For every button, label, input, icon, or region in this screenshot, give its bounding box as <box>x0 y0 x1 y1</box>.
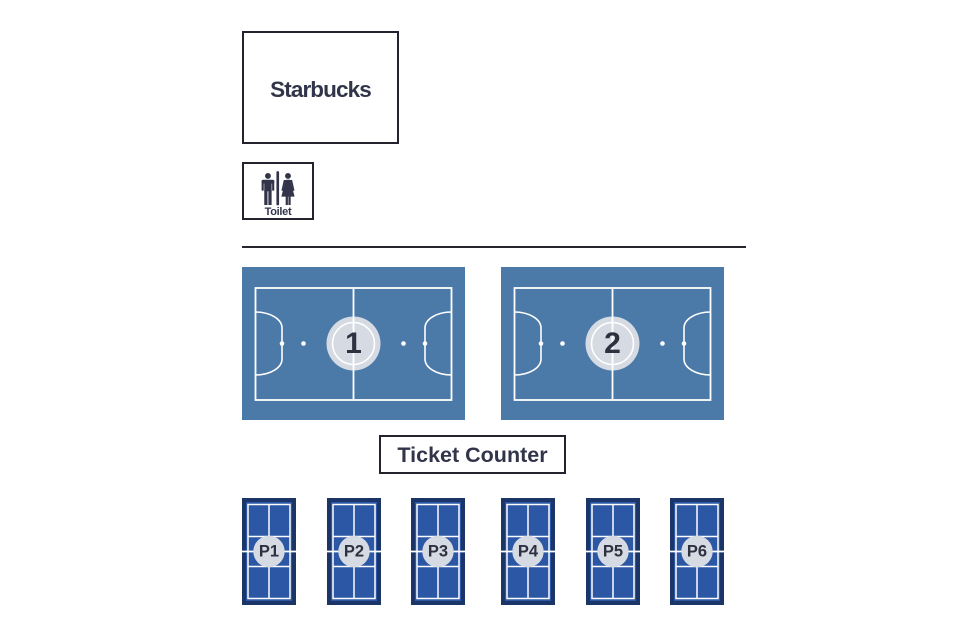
svg-text:P5: P5 <box>602 543 622 561</box>
svg-text:P6: P6 <box>687 543 707 561</box>
svg-text:2: 2 <box>604 327 621 360</box>
svg-text:P3: P3 <box>428 543 448 561</box>
svg-text:1: 1 <box>345 327 362 360</box>
svg-text:P4: P4 <box>518 543 539 561</box>
svg-text:P1: P1 <box>259 543 279 561</box>
svg-text:P2: P2 <box>343 543 363 561</box>
